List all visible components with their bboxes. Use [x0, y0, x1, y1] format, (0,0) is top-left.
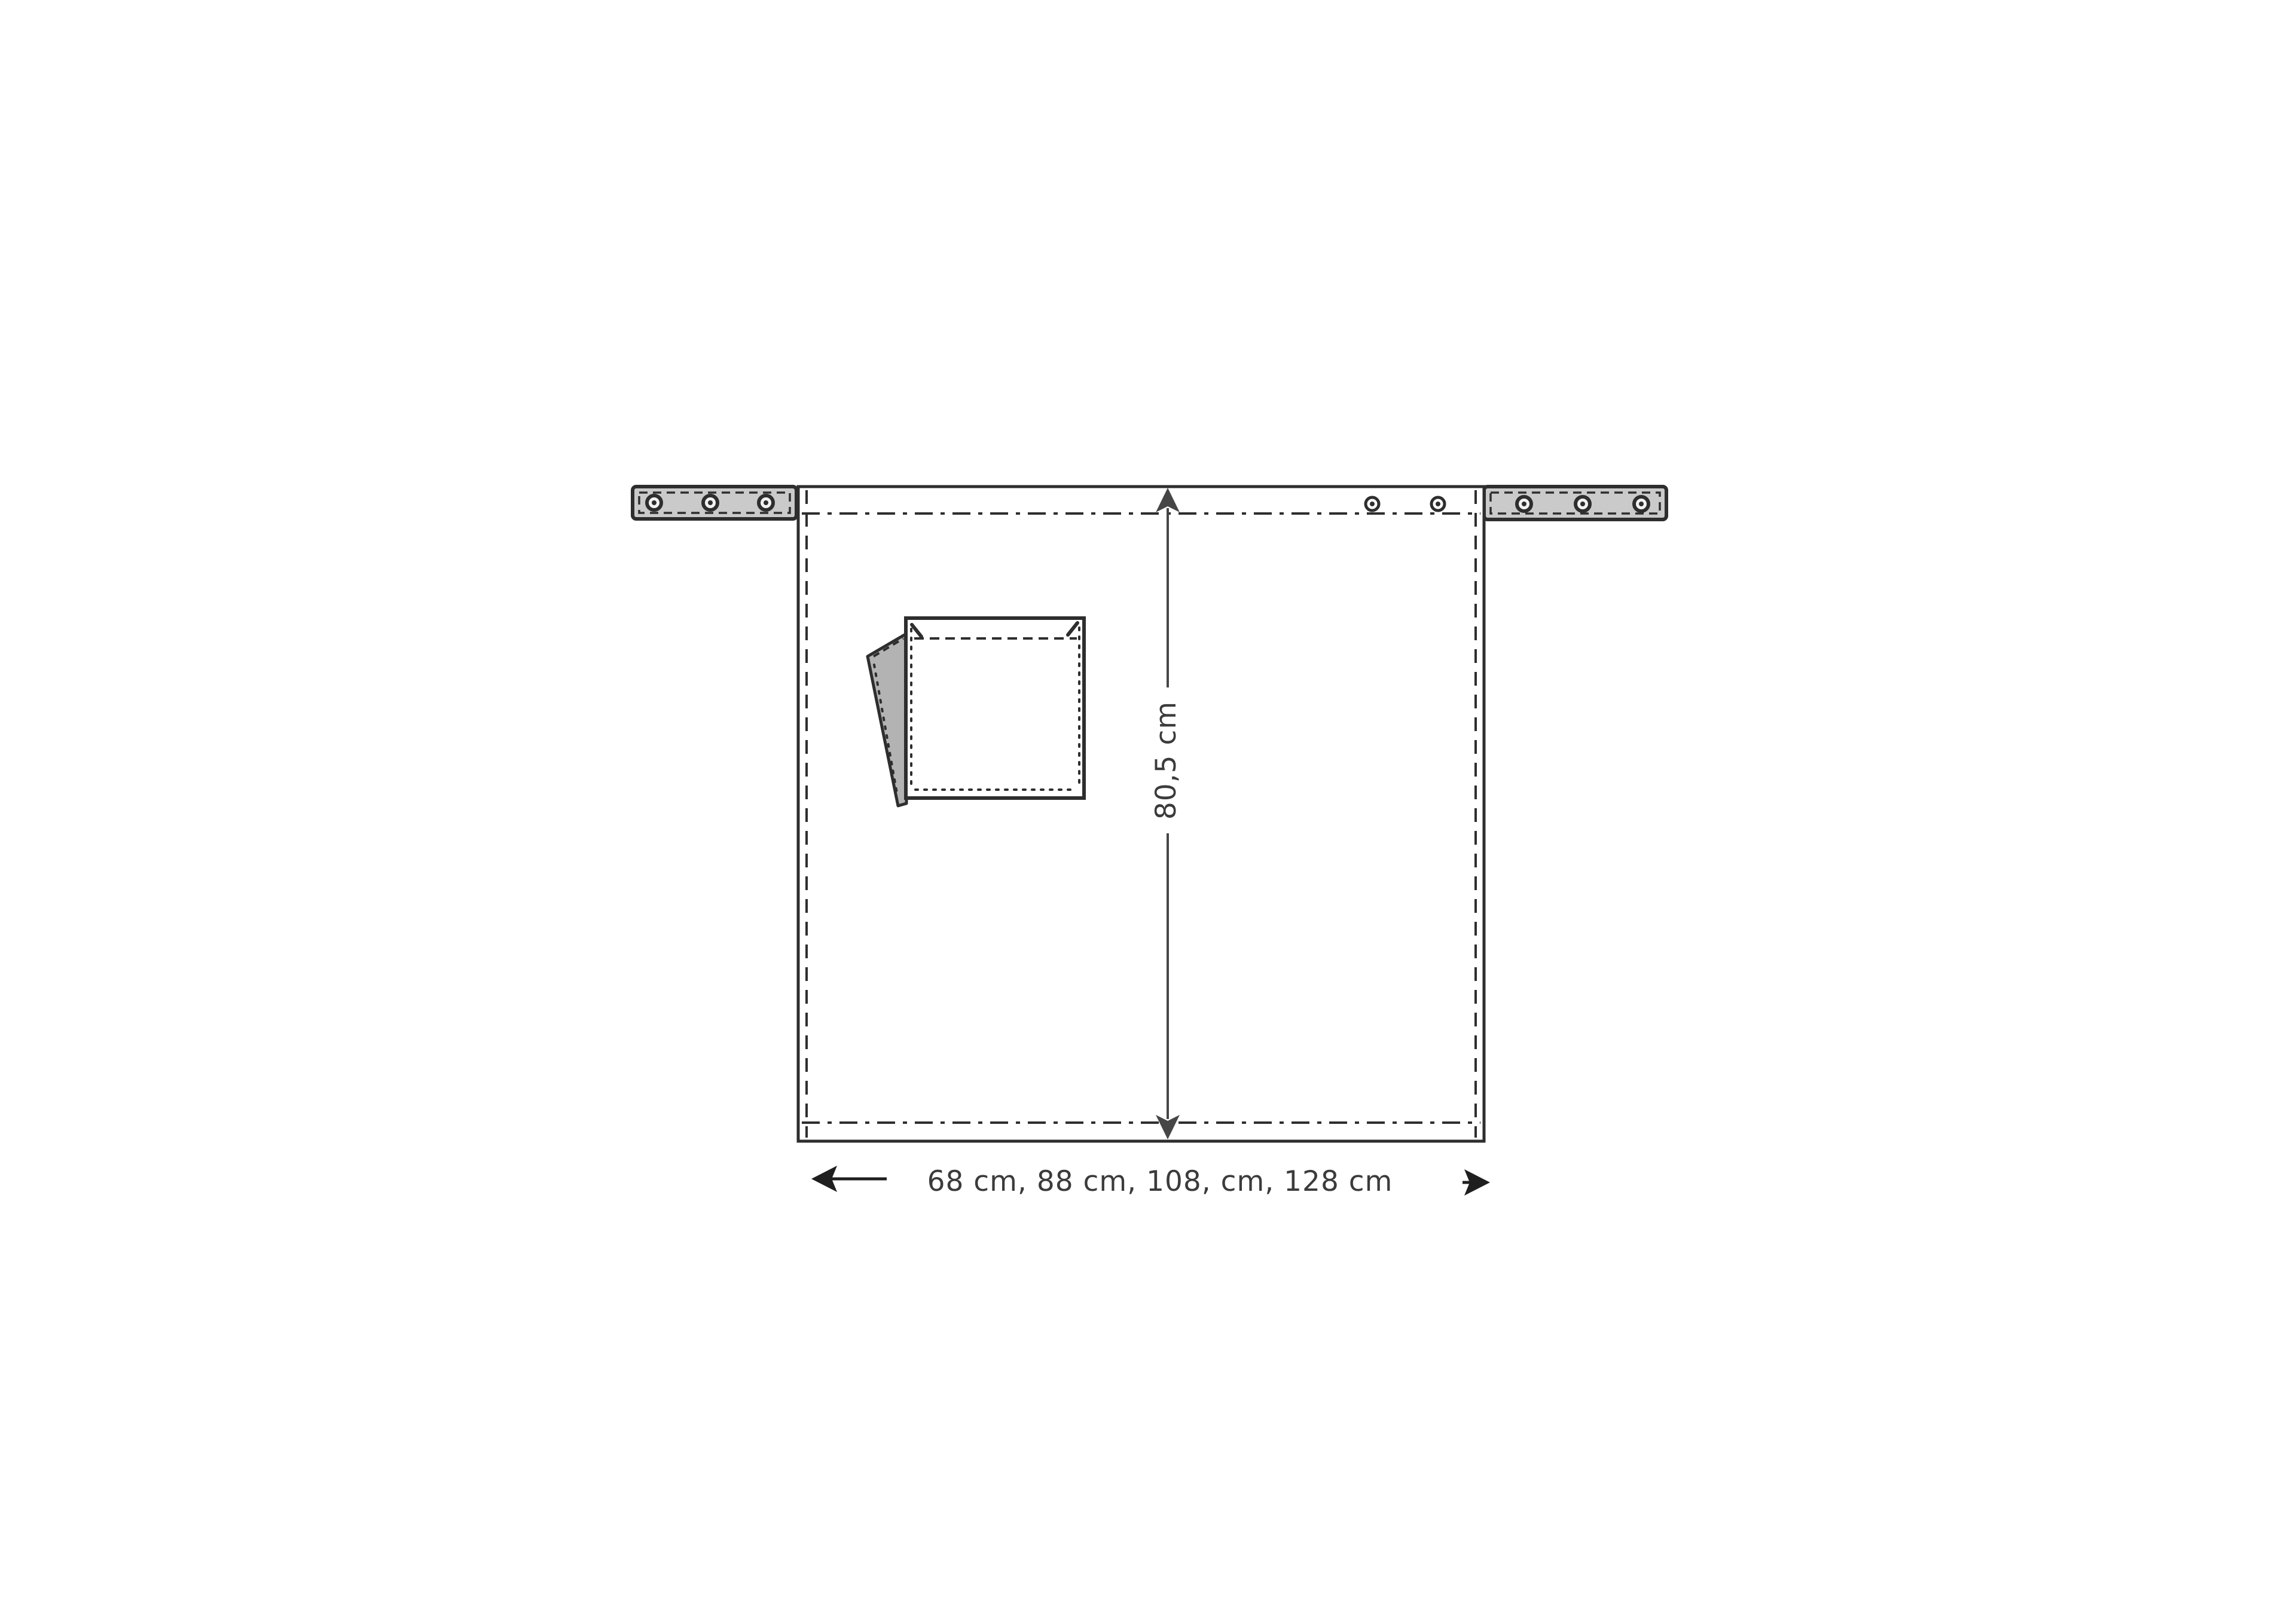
left-strap — [633, 487, 796, 519]
pocket-outline — [906, 618, 1084, 798]
width-dimension: 68 cm, 88 cm, 108, cm, 128 cm — [811, 1165, 1490, 1198]
waistband-button-dot — [1436, 502, 1440, 506]
apron-body — [798, 487, 1484, 1141]
right-strap-snap-dot — [1639, 502, 1644, 506]
right-strap-snap-dot — [1580, 502, 1585, 506]
pocket — [868, 618, 1084, 806]
apron-body-outline — [798, 487, 1484, 1141]
apron-technical-drawing: 80,5 cm 68 cm, 88 cm, 108, cm, 128 cm — [0, 0, 2296, 1623]
right-strap-snap-dot — [1522, 502, 1526, 506]
waistband-button-dot — [1370, 502, 1375, 506]
left-strap-snap-dot — [652, 500, 657, 505]
width-dimension-label: 68 cm, 88 cm, 108, cm, 128 cm — [927, 1165, 1393, 1198]
left-strap-snap-dot — [708, 500, 713, 505]
right-strap — [1484, 487, 1666, 519]
apron-diagram-page: 80,5 cm 68 cm, 88 cm, 108, cm, 128 cm — [0, 0, 2296, 1623]
height-dimension-label: 80,5 cm — [1150, 701, 1183, 820]
left-strap-snap-dot — [764, 500, 768, 505]
